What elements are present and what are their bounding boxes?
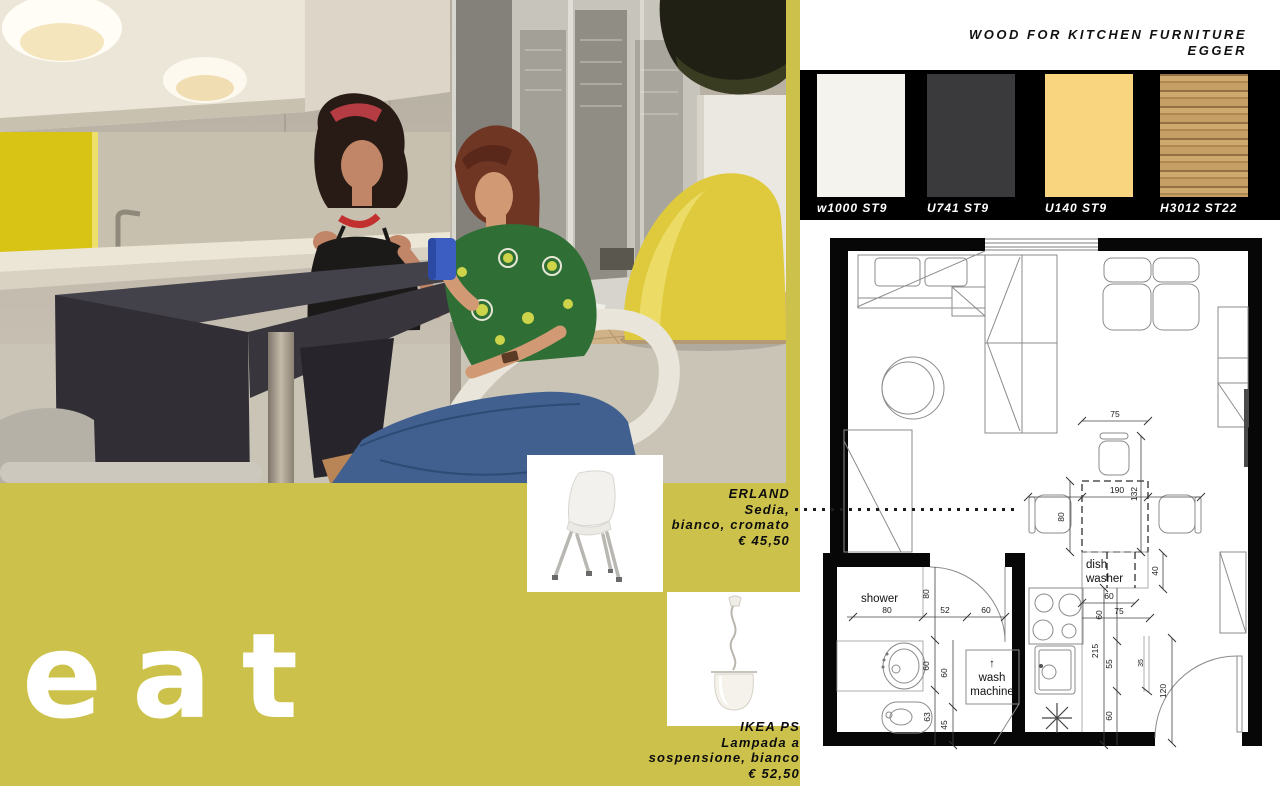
swatch-h3012 bbox=[1160, 74, 1248, 197]
mural-car bbox=[600, 248, 634, 270]
ceiling-lamp-symbol bbox=[1042, 703, 1072, 733]
product-price: € 52,50 bbox=[560, 766, 800, 782]
svg-text:60: 60 bbox=[981, 605, 991, 615]
presentation-board: { "colors": { "olive": "#ccc24b", "band"… bbox=[0, 0, 1280, 786]
product-name: IKEA PS bbox=[560, 719, 800, 735]
dishwasher-label: dish bbox=[1086, 559, 1107, 571]
svg-text:215: 215 bbox=[1090, 644, 1100, 658]
dimension-lines bbox=[847, 417, 1205, 749]
product-desc: Sedia, bbox=[590, 502, 790, 518]
blue-cup-shade bbox=[428, 238, 436, 280]
svg-text:52: 52 bbox=[940, 605, 950, 615]
svg-text:60: 60 bbox=[1094, 610, 1104, 620]
svg-text:80: 80 bbox=[1056, 512, 1066, 522]
table-leg-chrome bbox=[268, 332, 294, 483]
materials-title-line1: WOOD FOR KITCHEN FURNITURE bbox=[969, 27, 1247, 43]
round-chair bbox=[882, 357, 944, 419]
floor-plan: dish washer shower ↑ wash machine bbox=[823, 236, 1273, 760]
cabinet-right bbox=[1218, 307, 1248, 467]
chair-callout: ERLAND Sedia, bianco, cromato € 45,50 bbox=[590, 486, 790, 548]
product-desc: Lampada a bbox=[560, 735, 800, 751]
svg-text:80: 80 bbox=[921, 589, 931, 599]
svg-text:60: 60 bbox=[1104, 711, 1114, 721]
swatch-label: w1000 ST9 bbox=[817, 201, 927, 215]
kitchen-scene-photo bbox=[0, 0, 786, 483]
lamp-callout: IKEA PS Lampada a sospensione, bianco € … bbox=[560, 719, 800, 781]
entrance-door bbox=[1155, 656, 1242, 738]
swatch-label: U741 ST9 bbox=[927, 201, 1037, 215]
svg-text:80: 80 bbox=[882, 605, 892, 615]
product-desc: sospensione, bianco bbox=[560, 750, 800, 766]
dishwasher: dish washer bbox=[1082, 552, 1148, 588]
product-desc: bianco, cromato bbox=[590, 517, 790, 533]
bed bbox=[857, 251, 985, 316]
wash-machine-label: wash bbox=[978, 672, 1006, 684]
wood-texture bbox=[1160, 74, 1248, 197]
wash-machine-arrow: ↑ bbox=[989, 658, 995, 670]
svg-text:45: 45 bbox=[939, 720, 949, 730]
kitchen-counter bbox=[1029, 552, 1083, 733]
materials-title-line2: EGGER bbox=[969, 43, 1247, 59]
wash-machine-label: machine bbox=[970, 686, 1013, 698]
svg-text:120: 120 bbox=[1158, 684, 1168, 698]
svg-text:60: 60 bbox=[939, 668, 949, 678]
product-name: ERLAND bbox=[590, 486, 790, 502]
cabinet-bottom-right bbox=[1220, 552, 1246, 633]
hero-word: eat bbox=[22, 612, 328, 742]
shower-label: shower bbox=[861, 593, 898, 605]
svg-text:60: 60 bbox=[921, 661, 931, 671]
svg-text:60: 60 bbox=[1104, 591, 1114, 601]
sofa bbox=[1103, 258, 1199, 330]
swatch-label: H3012 ST22 bbox=[1160, 201, 1270, 215]
desk bbox=[844, 430, 912, 552]
kitchen-sink bbox=[1035, 646, 1075, 694]
dishwasher-label: washer bbox=[1085, 573, 1123, 585]
svg-text:75: 75 bbox=[1110, 409, 1120, 419]
floor-plan-drawing: dish washer shower ↑ wash machine bbox=[823, 236, 1273, 760]
swatch-u140 bbox=[1045, 74, 1133, 197]
swatch-w1000 bbox=[817, 74, 905, 197]
wardrobe bbox=[985, 255, 1057, 433]
window bbox=[985, 238, 1098, 251]
bath-sink-counter bbox=[837, 641, 923, 691]
product-price: € 45,50 bbox=[590, 533, 790, 549]
svg-text:55: 55 bbox=[1104, 659, 1114, 669]
lamp-product-card bbox=[667, 592, 800, 726]
kitchen-scene-illustration bbox=[0, 0, 786, 483]
svg-text:63: 63 bbox=[922, 712, 932, 722]
svg-text:190: 190 bbox=[1110, 485, 1124, 495]
svg-text:40: 40 bbox=[1150, 566, 1160, 576]
svg-text:35: 35 bbox=[1138, 659, 1145, 667]
swatch-label: U140 ST9 bbox=[1045, 201, 1155, 215]
chair-leader-line bbox=[795, 508, 1017, 511]
svg-text:132: 132 bbox=[1129, 487, 1139, 501]
swatch-u741 bbox=[927, 74, 1015, 197]
ikea-ps-lamp-image bbox=[667, 592, 800, 726]
material-swatch-band: w1000 ST9 U741 ST9 U140 ST9 H3012 ST22 bbox=[800, 70, 1280, 220]
yellow-cabinet bbox=[0, 132, 97, 253]
yellow-cabinet-edge bbox=[92, 132, 98, 253]
materials-title: WOOD FOR KITCHEN FURNITURE EGGER bbox=[969, 27, 1247, 59]
svg-text:75: 75 bbox=[1114, 606, 1124, 616]
